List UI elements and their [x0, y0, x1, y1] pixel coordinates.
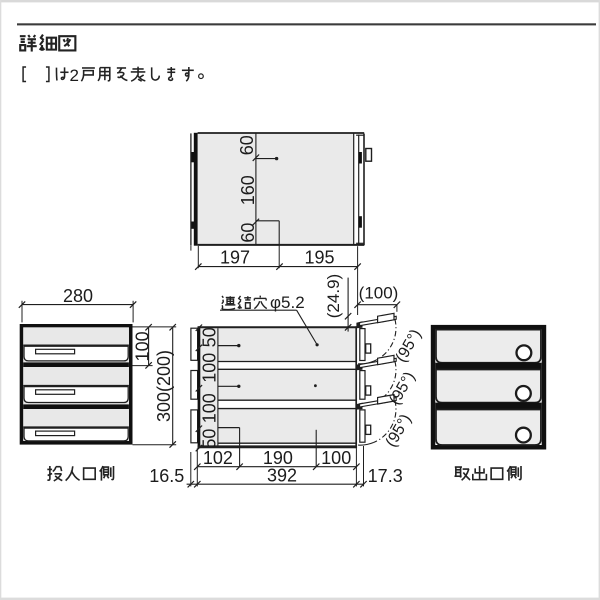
svg-text:(100): (100): [359, 284, 399, 303]
svg-text:160: 160: [238, 175, 258, 205]
svg-text:100: 100: [133, 331, 153, 361]
svg-text:50: 50: [199, 429, 219, 449]
svg-text:300(200): 300(200): [154, 350, 174, 422]
svg-text:100: 100: [199, 353, 219, 383]
svg-text:2: 2: [70, 66, 79, 85]
svg-text:195: 195: [304, 247, 334, 267]
svg-text:60: 60: [238, 223, 258, 243]
svg-text:280: 280: [63, 286, 93, 306]
svg-text:17.3: 17.3: [368, 466, 403, 486]
svg-text:φ5.2: φ5.2: [270, 293, 305, 312]
svg-text:102: 102: [203, 448, 233, 468]
svg-text:60: 60: [237, 135, 257, 155]
svg-text:50: 50: [199, 327, 219, 347]
svg-text:100: 100: [199, 393, 219, 423]
svg-text:(24.9): (24.9): [324, 274, 343, 318]
svg-text:392: 392: [267, 465, 297, 485]
svg-text:100: 100: [321, 448, 351, 468]
svg-text:16.5: 16.5: [149, 466, 184, 486]
svg-text:(95°): (95°): [393, 327, 425, 366]
svg-text:(95°): (95°): [383, 411, 415, 450]
svg-text:197: 197: [220, 247, 250, 267]
